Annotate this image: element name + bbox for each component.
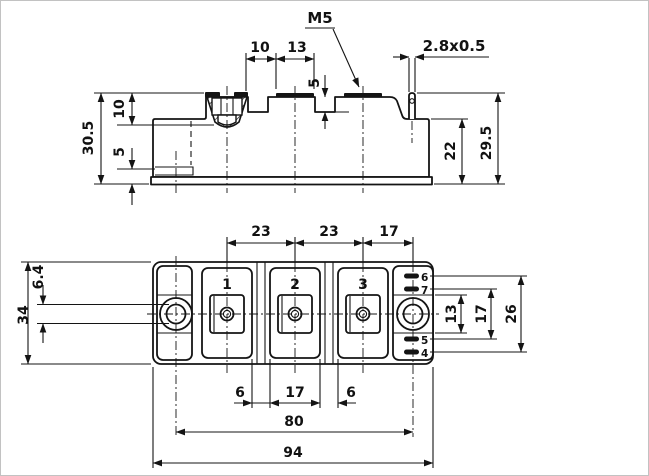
drawing-svg: 10 13 5 M5 2.8x0.5 30. bbox=[1, 1, 649, 476]
dim-label-pad-width: 13 bbox=[287, 40, 306, 56]
dim-label-notch-depth: 5 bbox=[307, 78, 323, 88]
dim-label-boss-height: 13 bbox=[444, 304, 460, 323]
aux-pin-5-label: 5 bbox=[421, 335, 428, 347]
dim-label-pins-outer-span: 26 bbox=[504, 304, 520, 323]
dim-label-gap-left: 6 bbox=[235, 385, 245, 401]
dim-label-body-length: 94 bbox=[283, 445, 303, 461]
dim-label-body-width: 34 bbox=[16, 305, 32, 325]
tab-size-label: 2.8x0.5 bbox=[423, 37, 486, 55]
aux-pin-7-label: 7 bbox=[421, 285, 428, 297]
dim-label-deck-height: 29.5 bbox=[479, 126, 495, 161]
dim-label-base-step: 5 bbox=[112, 147, 128, 157]
dim-label-pad-width: 17 bbox=[285, 385, 304, 401]
aux-pin-7 bbox=[404, 287, 419, 292]
plan-view: 1 2 3 6 7 5 4 bbox=[16, 224, 527, 468]
dim-label-pitch-2-3: 23 bbox=[319, 224, 338, 240]
aux-pin-6-label: 6 bbox=[421, 272, 428, 284]
side-baseplate bbox=[151, 177, 432, 185]
aux-pin-6 bbox=[404, 274, 419, 279]
dim-top-chain: 10 13 bbox=[246, 40, 314, 91]
dim-label-hole-diameter: 6.4 bbox=[31, 264, 47, 289]
dim-plan-right-stack: 13 17 26 bbox=[430, 276, 527, 352]
aux-pin-4 bbox=[404, 350, 419, 355]
side-body-outline bbox=[153, 97, 429, 177]
aux-pin-4-label: 4 bbox=[421, 348, 428, 360]
dim-label-pitch-3-hole: 17 bbox=[379, 224, 398, 240]
dim-label-pitch-1-2: 23 bbox=[251, 224, 270, 240]
side-view: 10 13 5 M5 2.8x0.5 30. bbox=[81, 9, 505, 205]
aux-pin-5 bbox=[404, 337, 419, 342]
dim-plan-top-chain: 23 23 17 bbox=[227, 224, 413, 263]
dim-right-stack: 22 29.5 bbox=[417, 93, 505, 184]
left-mount-section bbox=[157, 266, 192, 360]
faston-tab bbox=[409, 93, 415, 119]
technical-drawing: 10 13 5 M5 2.8x0.5 30. bbox=[0, 0, 649, 476]
dim-tab: 2.8x0.5 bbox=[393, 37, 489, 92]
dim-label-gap-right: 6 bbox=[346, 385, 356, 401]
dim-label-pins-inner-span: 17 bbox=[474, 304, 490, 323]
dim-label-hole-spacing: 80 bbox=[284, 414, 304, 430]
m5-label: M5 bbox=[307, 9, 332, 27]
dim-label-pad-offset: 10 bbox=[250, 40, 270, 56]
dim-hole-spacing: 80 bbox=[176, 414, 413, 432]
dim-label-pocket-depth: 10 bbox=[112, 99, 128, 119]
dim-label-total-height: 30.5 bbox=[81, 121, 97, 156]
dim-plan-left: 34 6.4 bbox=[16, 262, 169, 364]
nut-rim-left bbox=[205, 92, 220, 98]
m5-callout: M5 bbox=[305, 9, 359, 87]
nut-rim-right bbox=[234, 92, 248, 98]
dim-label-step-height: 22 bbox=[443, 141, 459, 160]
